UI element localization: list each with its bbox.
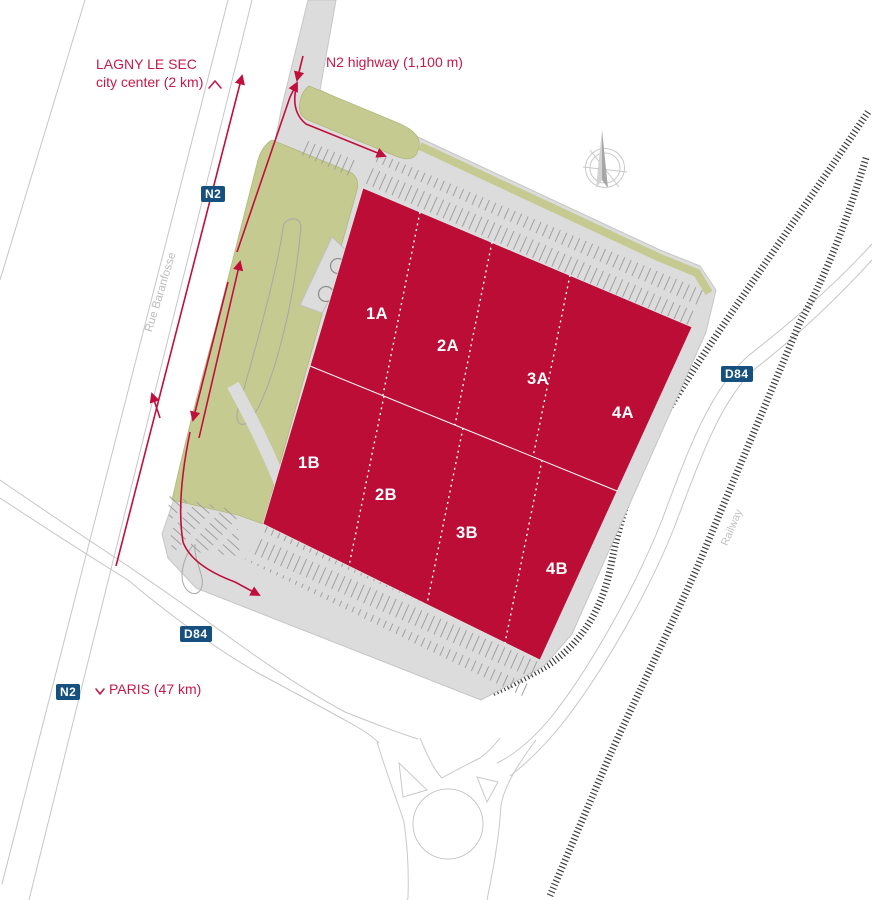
label-lagny-line1: LAGNY LE SEC	[96, 56, 203, 74]
label-paris: PARIS (47 km)	[109, 681, 201, 699]
roundabout-island-ne	[477, 777, 498, 802]
label-n2-highway: N2 highway (1,100 m)	[326, 54, 463, 72]
unit-label-1a: 1A	[366, 305, 388, 323]
unit-label-2b: 2B	[375, 486, 397, 504]
unit-label-4a: 4A	[612, 404, 634, 422]
road-badge-d84-east: D84	[721, 366, 753, 382]
road-badge-d84-west: D84	[180, 626, 212, 642]
site-map: 1A 2A 3A 4A 1B 2B 3B 4B LAGNY LE S	[0, 0, 872, 900]
map-canvas: 1A 2A 3A 4A 1B 2B 3B 4B	[0, 0, 872, 900]
road-stub-topleft	[0, 0, 85, 280]
label-lagny-le-sec: LAGNY LE SEC city center (2 km)	[96, 56, 203, 91]
unit-label-2a: 2A	[437, 337, 459, 355]
unit-label-3b: 3B	[456, 524, 478, 542]
unit-label-1b: 1B	[298, 454, 320, 472]
caret-up-icon	[209, 81, 221, 88]
road-badge-n2-lower: N2	[56, 684, 80, 700]
roundabout-island-nw	[399, 763, 427, 797]
compass-icon	[583, 130, 627, 188]
roundabout	[377, 738, 536, 900]
roundabout-center	[413, 789, 483, 859]
caret-down-icon	[96, 689, 104, 694]
unit-label-4b: 4B	[546, 560, 568, 578]
unit-label-3a: 3A	[527, 370, 549, 388]
road-badge-n2-upper: N2	[201, 186, 225, 202]
label-lagny-line2: city center (2 km)	[96, 74, 203, 92]
